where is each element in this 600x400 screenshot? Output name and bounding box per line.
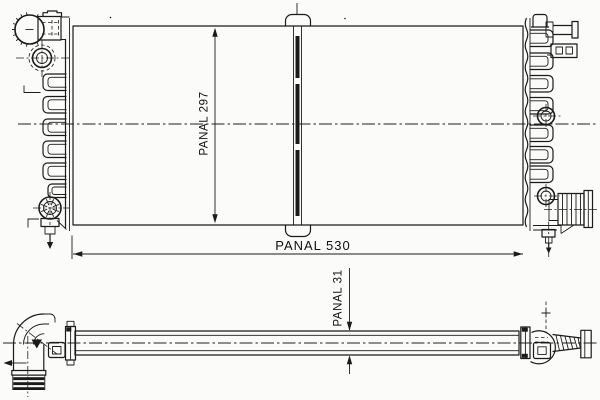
elbow-bisector-centerline <box>17 324 57 355</box>
hose-ribs <box>13 375 45 390</box>
left-tank <box>12 11 70 249</box>
cap-serrations <box>12 12 38 46</box>
dim-core-height-label: PANAL 297 <box>199 91 211 155</box>
filler-neck <box>12 11 62 47</box>
mounting-tab <box>530 147 554 164</box>
top-mount-clip <box>286 15 311 26</box>
mounting-tab <box>43 74 67 91</box>
dim-core-width: PANAL 530 <box>72 236 523 260</box>
dim-core-height: PANAL 297 <box>199 28 218 224</box>
radiator-drawing: PANAL 297 PANAL 530 <box>0 0 600 400</box>
pipe-boss-lower <box>534 184 560 209</box>
sensor-boss <box>16 40 70 77</box>
inlet-pipe <box>546 22 578 39</box>
dim-core-depth: PANAL 31 <box>333 268 353 374</box>
filler-top-bracket <box>43 11 62 17</box>
mounting-tab <box>530 76 554 93</box>
mounting-tab <box>43 97 67 114</box>
hose-collar <box>12 371 46 376</box>
bottom-mount-clip <box>286 226 311 237</box>
lower-drain-plug <box>542 222 555 258</box>
right-tank <box>525 15 598 258</box>
mounting-tab-small <box>48 184 67 198</box>
radiator-front-view: PANAL 297 PANAL 530 <box>12 3 598 259</box>
mounting-tab <box>43 141 67 158</box>
center-divider <box>286 3 311 237</box>
left-arrow-icon <box>4 360 13 366</box>
mounting-tab <box>530 30 554 47</box>
speck <box>110 17 112 19</box>
outlet-barb <box>553 330 592 358</box>
bracket-wire <box>24 86 41 93</box>
bracket-wire <box>28 219 39 228</box>
mounting-tab <box>530 166 554 183</box>
mounting-tab <box>530 125 554 142</box>
union-nut-left <box>49 343 66 358</box>
drain-plug <box>41 219 67 250</box>
elbow-outlet <box>4 314 66 397</box>
center-mark <box>542 302 551 334</box>
technical-drawing-canvas: PANAL 297 PANAL 530 <box>0 0 600 400</box>
dim-core-depth-label: PANAL 31 <box>333 269 345 326</box>
union-nut-right <box>534 343 551 359</box>
mounting-tab <box>43 163 67 180</box>
speck <box>344 18 346 20</box>
right-outlet <box>521 302 591 364</box>
mounting-tab <box>43 119 67 136</box>
mounting-tab <box>530 53 554 70</box>
radiator-top-view: PANAL 31 <box>3 268 597 397</box>
mounting-tab <box>530 98 554 115</box>
dim-core-width-label: PANAL 530 <box>275 238 351 253</box>
